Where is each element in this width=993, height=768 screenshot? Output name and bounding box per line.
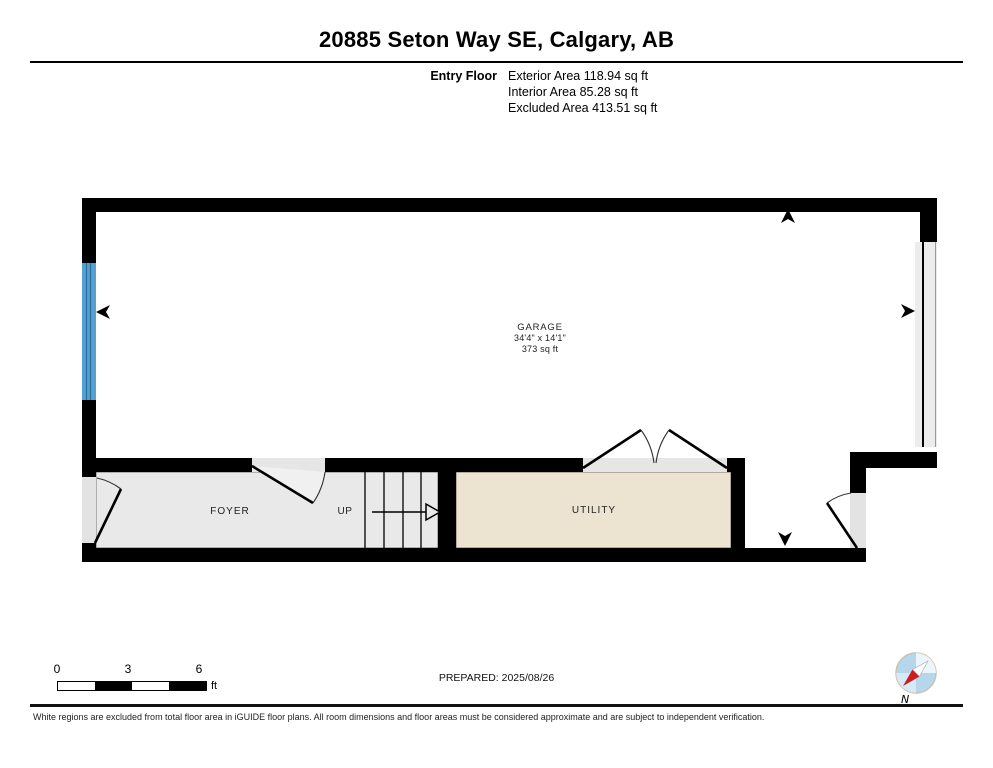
window-glass (82, 263, 96, 400)
disclaimer-text: White regions are excluded from total fl… (33, 712, 963, 722)
wall-top (82, 198, 937, 212)
stairs-up-label: UP (325, 506, 365, 517)
wall-right-jog (850, 452, 937, 468)
wall-foyer-top-a (96, 458, 252, 472)
wall-bottom (82, 548, 866, 562)
wall-left-upper (82, 198, 96, 263)
arrow-right-icon (901, 304, 915, 318)
wall-left-mid (82, 400, 96, 477)
arrow-left-icon (96, 305, 110, 319)
garage-name: GARAGE (440, 322, 640, 333)
floor-plan-page: 20885 Seton Way SE, Calgary, AB Entry Fl… (0, 0, 993, 768)
entry-door-opening (82, 477, 96, 543)
side-door-swing-arc (827, 493, 851, 503)
prepared-date: PREPARED: 2025/08/26 (0, 672, 993, 684)
utility-double-door-opening (583, 458, 727, 472)
wall-right-lower (850, 468, 866, 493)
garage-dimensions: 34'4" x 14'1" (440, 333, 640, 344)
wall-foyer-top-b (325, 458, 456, 472)
wall-utility-right (731, 458, 745, 548)
footer-divider (30, 704, 963, 707)
utility-name: UTILITY (544, 505, 644, 516)
foyer-name: FOYER (180, 506, 280, 517)
wall-stairs-right (438, 458, 456, 562)
garage-label: GARAGE 34'4" x 14'1" 373 sq ft (440, 322, 640, 355)
garage-area: 373 sq ft (440, 344, 640, 355)
floor-plan-drawing: N (0, 0, 993, 768)
window (82, 263, 96, 400)
garage-door-band (915, 242, 937, 447)
arrow-down-icon (778, 532, 792, 546)
wall-utility-top (456, 458, 583, 472)
wall-top-right-block (920, 198, 937, 242)
